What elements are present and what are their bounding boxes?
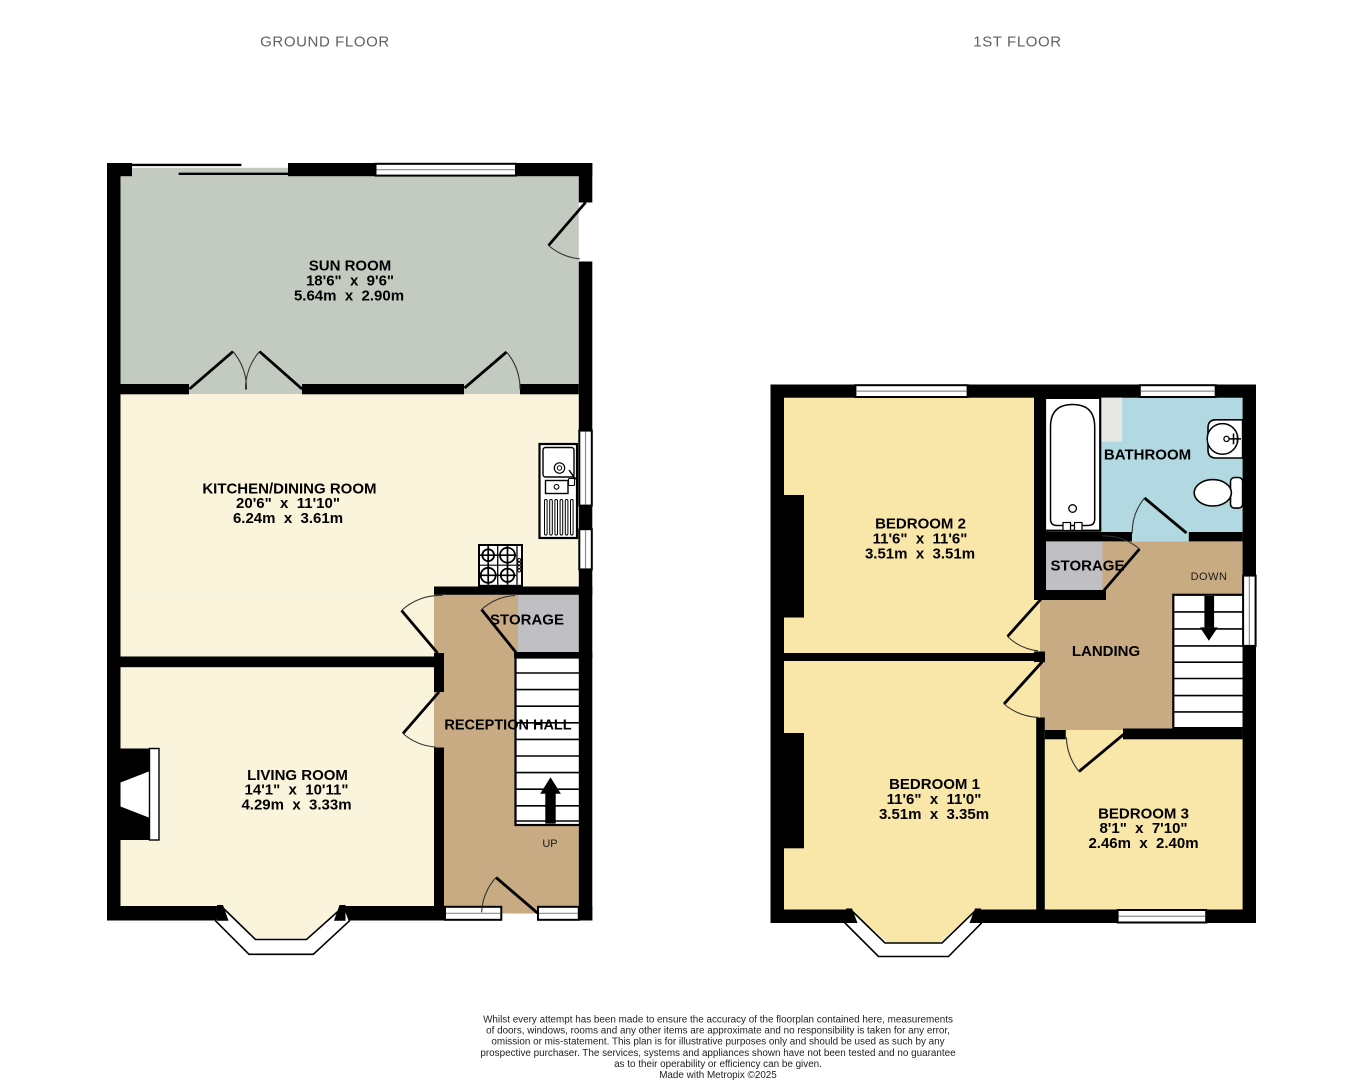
svg-text:RECEPTION HALL: RECEPTION HALL [444,718,571,734]
svg-text:Made with Metropix ©2025: Made with Metropix ©2025 [659,1070,777,1080]
svg-text:4.29m x 3.33m: 4.29m x 3.33m [241,796,351,813]
svg-text:3.51m x 3.35m: 3.51m x 3.35m [879,806,989,823]
svg-text:2.46m x 2.40m: 2.46m x 2.40m [1088,835,1198,852]
svg-text:Whilst every attempt has been: Whilst every attempt has been made to en… [483,1015,953,1026]
svg-text:as to their operability or eff: as to their operability or efficiency ca… [614,1059,822,1070]
svg-text:GROUND FLOOR: GROUND FLOOR [260,34,390,51]
svg-text:DOWN: DOWN [1191,571,1228,583]
svg-text:LANDING: LANDING [1072,643,1140,660]
svg-text:1ST FLOOR: 1ST FLOOR [973,34,1061,51]
svg-text:5.64m x 2.90m: 5.64m x 2.90m [294,287,404,304]
svg-text:prospective purchaser. The ser: prospective purchaser. The services, sys… [480,1048,956,1059]
svg-text:BATHROOM: BATHROOM [1104,446,1191,463]
svg-text:STORAGE: STORAGE [1051,558,1125,575]
svg-text:3.51m x 3.51m: 3.51m x 3.51m [865,545,975,562]
svg-text:of doors, windows, rooms and a: of doors, windows, rooms and any other i… [486,1026,950,1037]
svg-text:STORAGE: STORAGE [490,612,564,629]
svg-text:6.24m x 3.61m: 6.24m x 3.61m [233,510,343,527]
svg-text:omission or mis-statement. Thi: omission or mis-statement. This plan is … [491,1037,944,1048]
svg-text:UP: UP [542,838,557,850]
